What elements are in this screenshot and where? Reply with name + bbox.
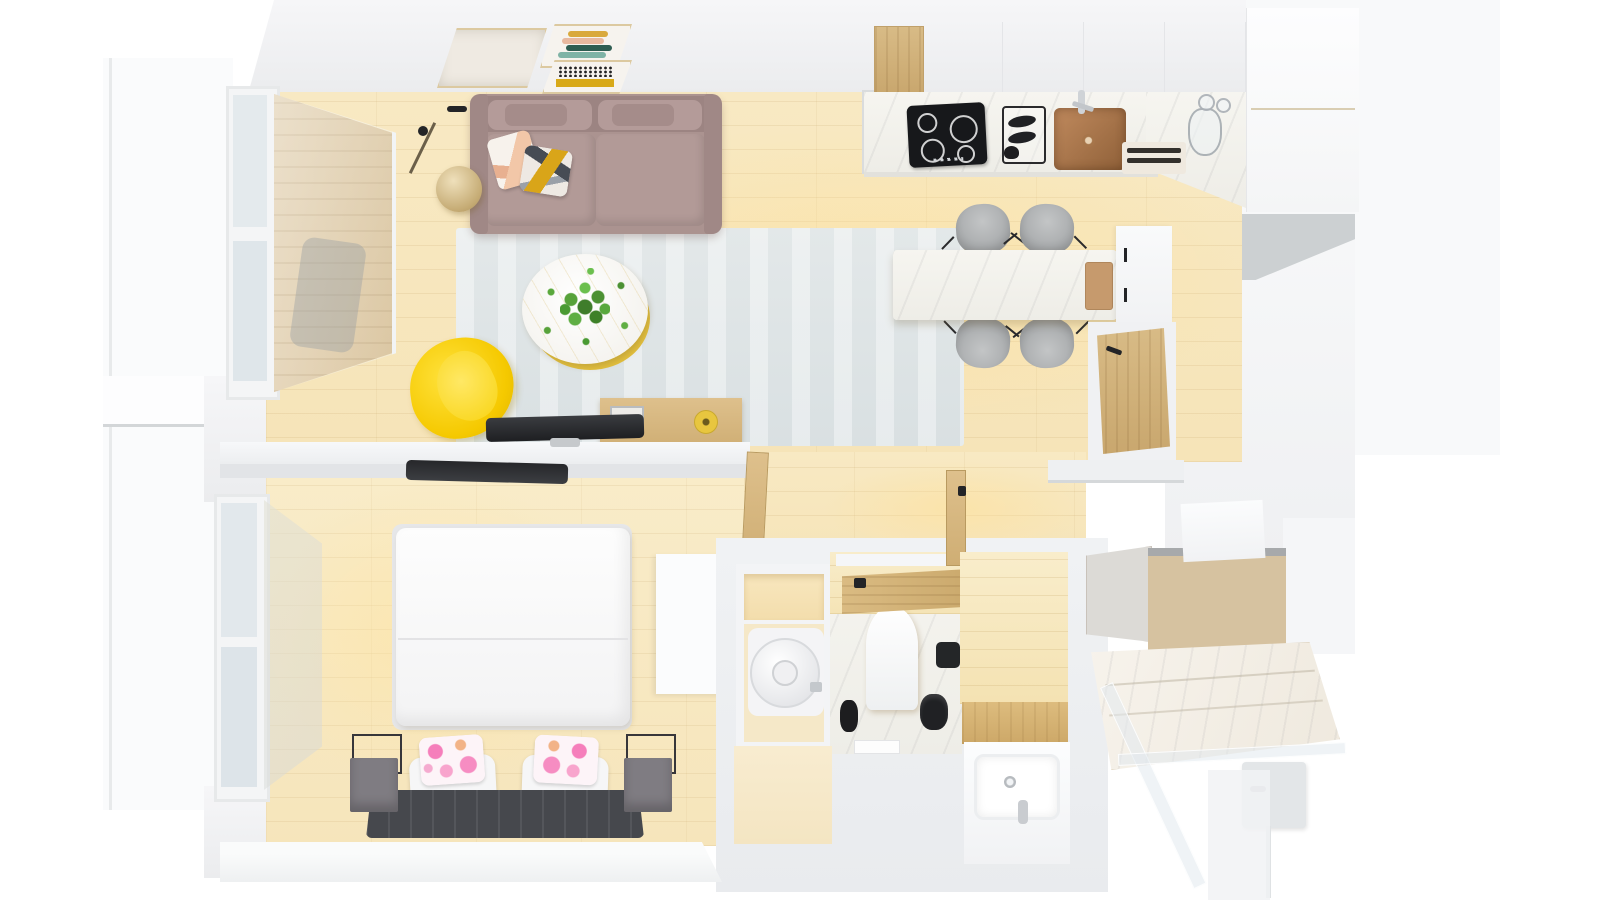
heater-niche (736, 564, 832, 748)
candle (694, 410, 718, 434)
vanity-wall-tiles (960, 552, 1068, 704)
plate (1007, 114, 1036, 130)
heater-valve (810, 682, 822, 692)
kettle (1004, 146, 1019, 159)
floorplan-render (0, 0, 1600, 900)
wash-basin (974, 754, 1060, 820)
bed-duvet (396, 528, 630, 726)
bed-pillow-pink-floral (418, 734, 485, 786)
cooktop-controls (933, 157, 963, 162)
half-wall-partition (220, 442, 750, 464)
upper-cabinets-white (922, 22, 1246, 95)
shower-cabinet-white-top (1181, 500, 1266, 562)
art-stroke-teal-light (558, 52, 606, 58)
sofa-seat-cushion (596, 134, 706, 226)
nightstand (350, 758, 398, 812)
floor-lamp-shade (436, 166, 482, 212)
cabinet-handle (1124, 288, 1127, 302)
balcony-railing (109, 58, 112, 810)
art-stroke-mustard (568, 31, 608, 37)
window-living-pane (233, 241, 267, 381)
shower-tray-seam (1109, 700, 1323, 717)
nightstand (624, 758, 672, 812)
wall-shower-right (1283, 518, 1355, 654)
wall-bottom-bedroom (220, 842, 722, 882)
plate (1007, 130, 1036, 146)
bed-pillow-pink-floral (533, 734, 599, 785)
sofa-headrest (612, 104, 674, 126)
headboard (366, 790, 644, 838)
window-living-pane (233, 95, 267, 227)
corridor-door-handle (958, 486, 966, 496)
sofa-headrest (505, 104, 567, 126)
basin-faucet-knob (1004, 776, 1016, 788)
dish-rack (1002, 106, 1046, 164)
toilet-roll-holder (936, 642, 960, 668)
board-dark (1127, 148, 1181, 153)
toilet-base-plate (854, 740, 900, 754)
window-bedroom-pane (221, 503, 257, 637)
sofa-arm-left (470, 94, 488, 234)
burner-ring (917, 113, 938, 134)
sofa-arm-right (704, 94, 722, 234)
dining-chair (954, 202, 1011, 256)
duvet-seam (398, 638, 628, 640)
shower-wall-bottom (1208, 770, 1270, 900)
dining-table (893, 250, 1117, 320)
dining-side-cabinet (1116, 226, 1172, 334)
board-dark (1127, 158, 1181, 163)
tv-living-stand (550, 438, 580, 447)
window-bedroom-frame (214, 494, 270, 802)
floor-lamp-base (418, 126, 428, 136)
bedroom-glass-sliver (264, 500, 322, 790)
niche-shelf (744, 574, 824, 620)
toilet-brush (840, 700, 858, 732)
window-living-frame (226, 86, 280, 400)
window-bedroom-pane (221, 647, 257, 787)
shower-cabinet-front-grey (1086, 546, 1152, 642)
sofa-pillow-yellow (519, 145, 574, 198)
art-yellow-band (556, 79, 614, 87)
wc-door-handle (854, 578, 866, 588)
art-stroke-peach (562, 38, 604, 44)
toilet (866, 606, 918, 710)
serving-tray (1085, 262, 1113, 310)
basin-tap (1018, 800, 1028, 824)
cabinet-seam-gold (1251, 108, 1355, 110)
wall-art-frame-dots (542, 60, 632, 94)
water-heater-ring (772, 660, 798, 686)
plant (560, 282, 610, 332)
drinking-glass (1198, 94, 1215, 111)
kitchen-sink (1054, 108, 1126, 170)
cabinet-handle (1124, 248, 1127, 262)
induction-cooktop (906, 102, 987, 168)
shower-tray-seam (1105, 670, 1315, 687)
dining-chair (1019, 203, 1076, 256)
glass-jug (1188, 108, 1222, 156)
art-stroke-teal-dark (566, 45, 612, 51)
waste-bin (920, 694, 948, 730)
upper-cabinet-oak (874, 26, 924, 94)
tall-cabinet-column (1246, 8, 1359, 212)
cutting-boards (1122, 142, 1186, 174)
art-dot-pattern (558, 66, 614, 77)
bathroom-entry-floor (734, 746, 832, 844)
sink-drain (1082, 134, 1095, 147)
shower-cabinet-oak (1148, 556, 1286, 650)
burner-ring (949, 114, 978, 143)
drinking-glass (1216, 98, 1231, 113)
sofa (470, 94, 722, 234)
burner-ring (957, 145, 976, 164)
entry-door (1094, 328, 1170, 454)
tv-bedroom (406, 460, 568, 484)
entry-sill-cabinet (1048, 460, 1184, 483)
wall-switch (447, 106, 467, 112)
vanity-bench-oak (962, 702, 1068, 744)
